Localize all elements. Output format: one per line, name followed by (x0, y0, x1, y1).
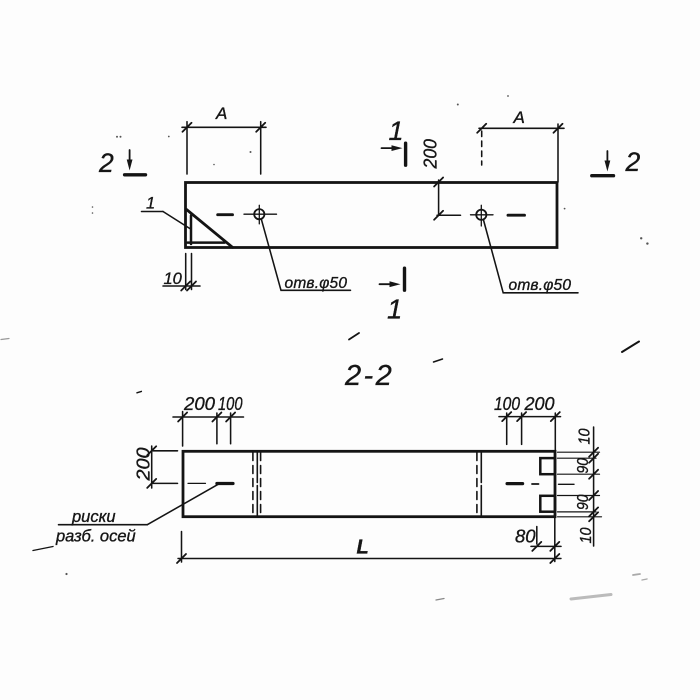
svg-text:1: 1 (389, 116, 404, 146)
svg-text:200: 200 (524, 393, 556, 414)
svg-text:90: 90 (575, 494, 592, 510)
svg-text:200: 200 (420, 138, 441, 169)
svg-text:1: 1 (387, 294, 402, 325)
svg-text:L: L (357, 537, 369, 559)
svg-text:100: 100 (218, 393, 243, 414)
svg-text:100: 100 (494, 393, 521, 414)
svg-text:10: 10 (577, 428, 594, 444)
svg-text:отв.φ50: отв.φ50 (285, 275, 348, 292)
svg-text:риски: риски (71, 508, 116, 526)
svg-text:10: 10 (164, 270, 183, 288)
svg-text:A: A (513, 108, 525, 127)
svg-text:2: 2 (625, 147, 641, 177)
svg-text:90: 90 (575, 458, 592, 474)
svg-text:A: A (215, 104, 227, 123)
svg-text:10: 10 (578, 527, 595, 543)
svg-text:разб. осей: разб. осей (55, 528, 136, 546)
svg-text:2-2: 2-2 (344, 360, 394, 392)
svg-text:80: 80 (515, 526, 536, 547)
svg-text:200: 200 (133, 447, 154, 482)
svg-text:отв.φ50: отв.φ50 (509, 277, 572, 294)
svg-text:1: 1 (146, 195, 155, 213)
svg-text:2: 2 (98, 148, 114, 178)
svg-text:200: 200 (183, 393, 216, 414)
